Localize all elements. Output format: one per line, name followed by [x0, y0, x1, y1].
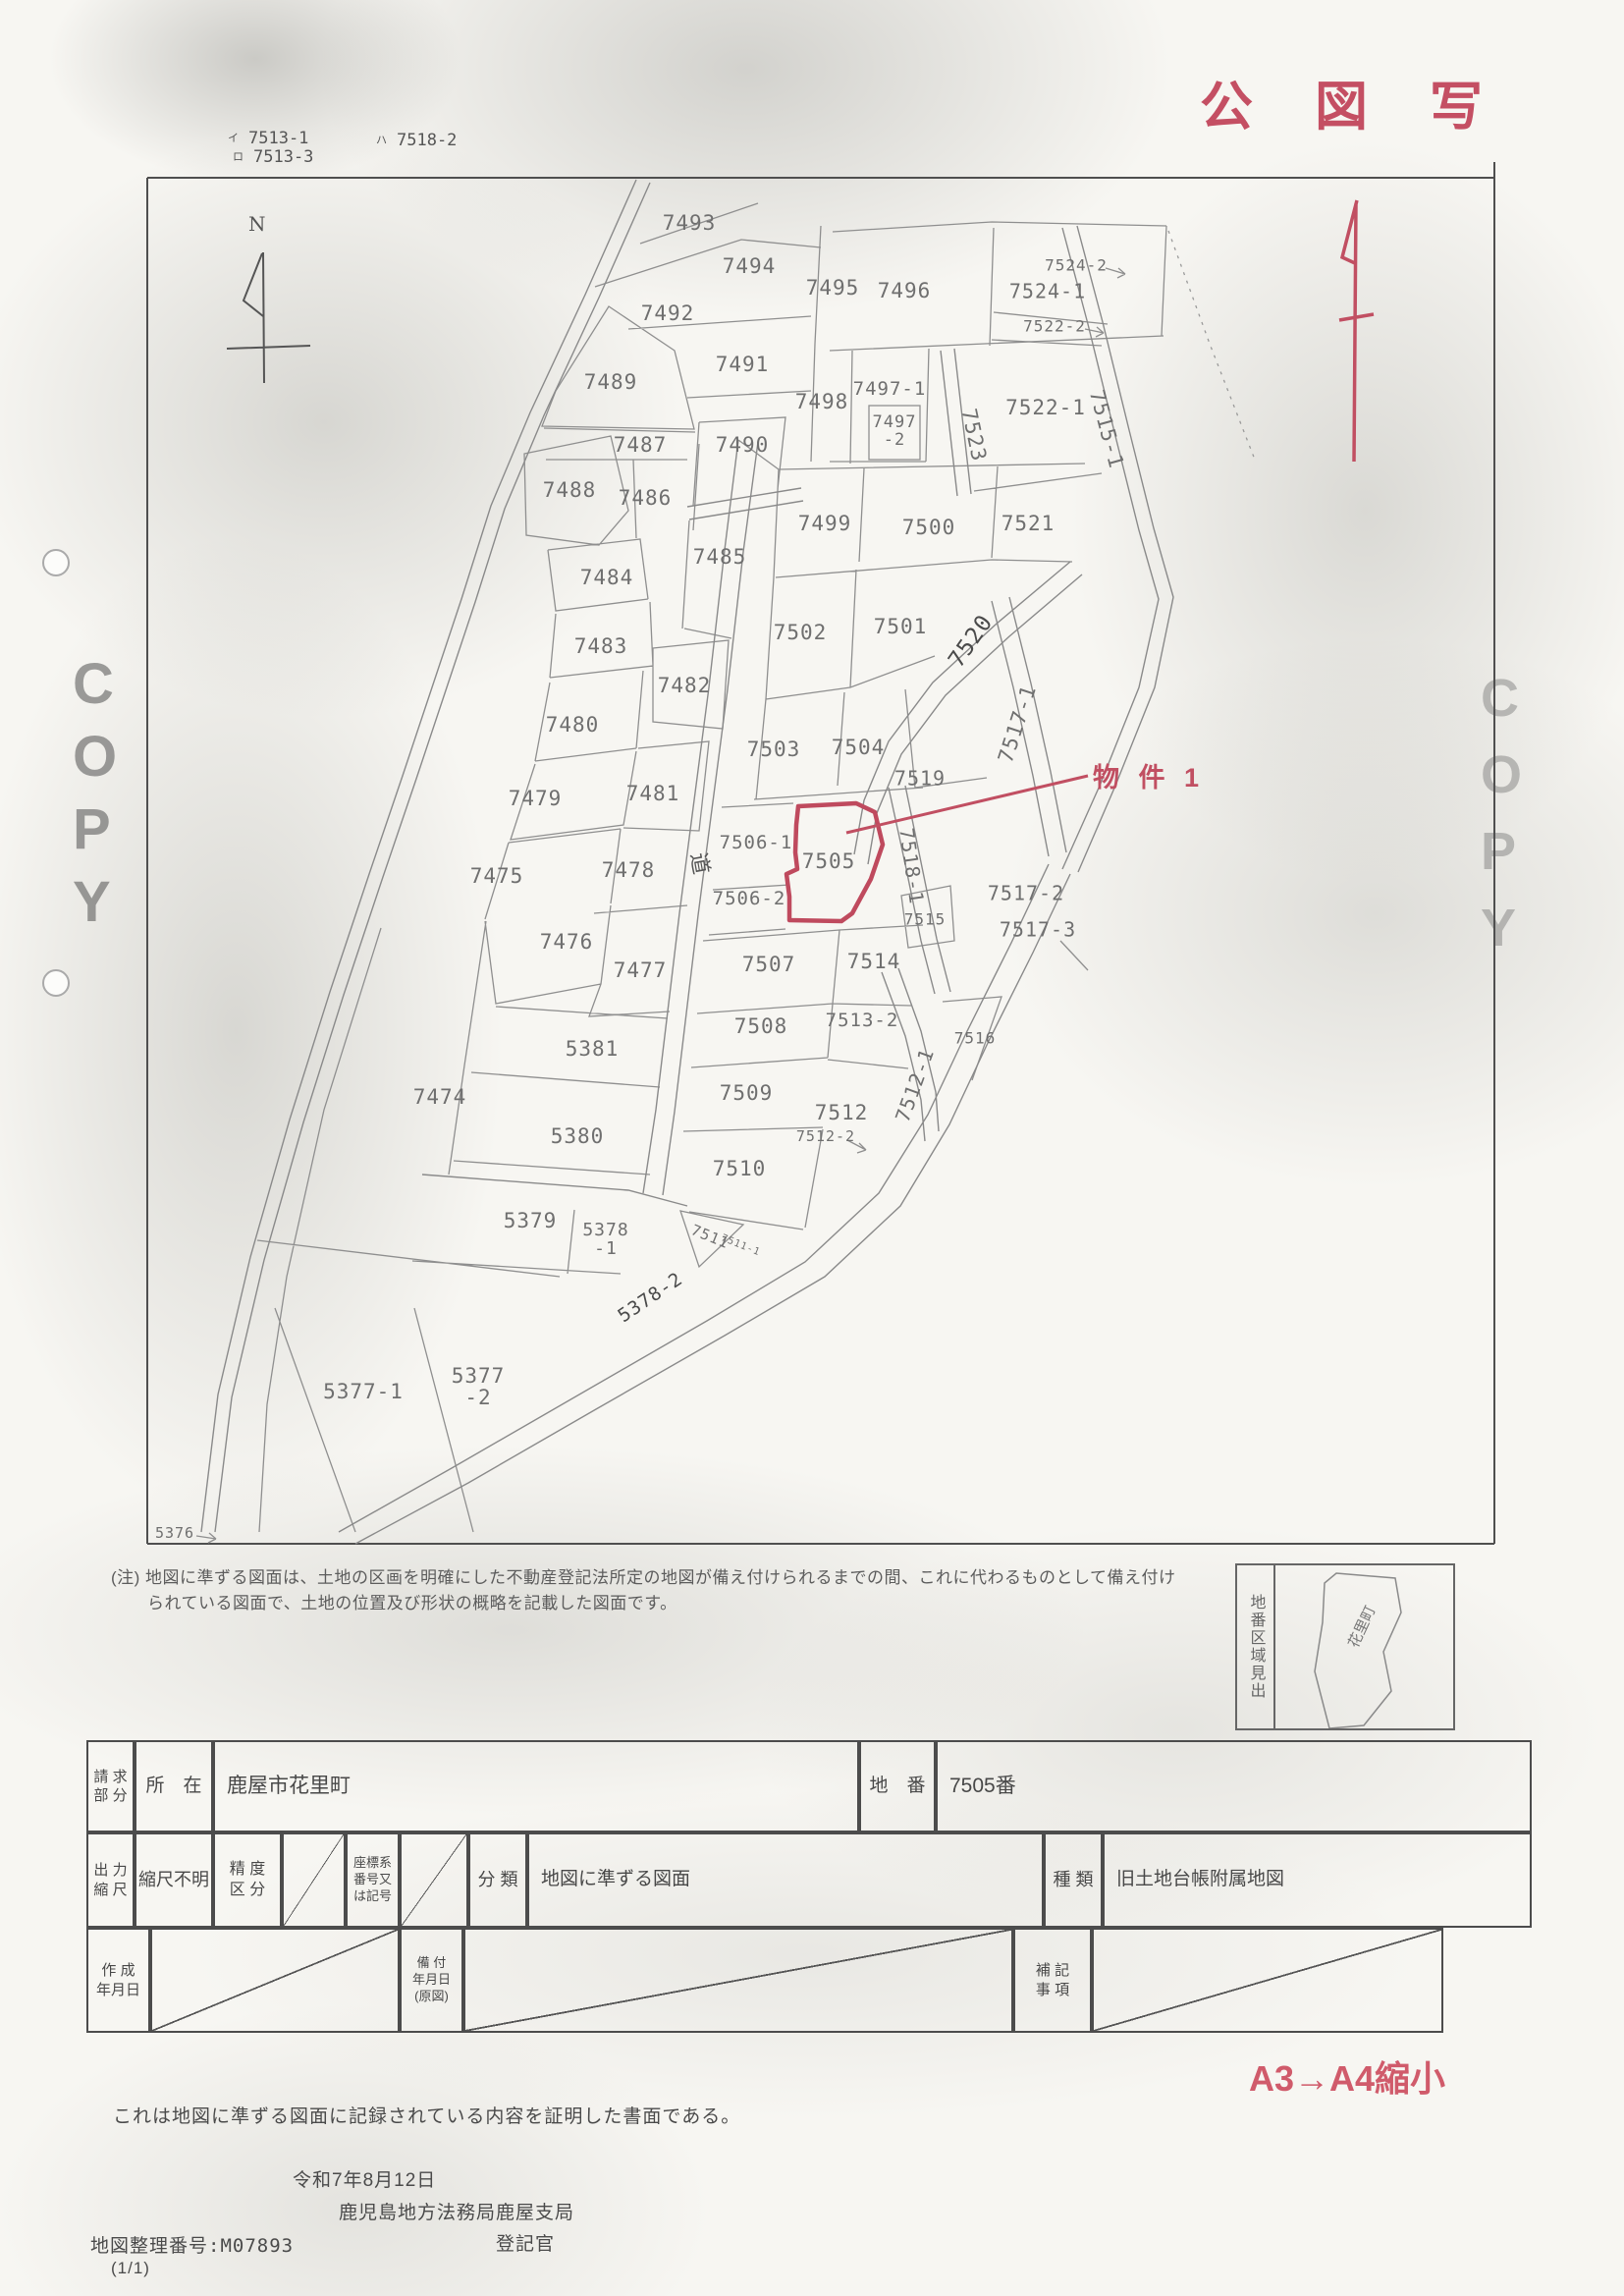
parcel-label-7522-1: 7522-1 [1005, 397, 1086, 418]
parcel-label-7492: 7492 [641, 302, 695, 324]
parcel-label-7483: 7483 [574, 635, 628, 657]
parcel-label-7475: 7475 [470, 865, 524, 887]
created-date-label: 作 成 年月日 [86, 1928, 150, 2033]
parcel-label-7498: 7498 [795, 391, 849, 412]
parcel-label-7506-1: 7506-1 [720, 834, 793, 853]
coord-blank-cell [400, 1832, 468, 1928]
parcel-label-道: 道 [686, 851, 713, 878]
parcel-label-7476: 7476 [540, 931, 594, 953]
district-index-box: 地番区域見出 花里町 [1235, 1563, 1455, 1730]
parcel-label-7493: 7493 [663, 212, 717, 234]
parcel-label-5379: 5379 [504, 1210, 558, 1231]
parcel-label-7503: 7503 [747, 738, 801, 760]
parcel-label-7491: 7491 [716, 354, 770, 375]
parcel-label-7481: 7481 [626, 783, 680, 804]
page-count: (1/1) [111, 2259, 150, 2278]
parcel-label-7474: 7474 [413, 1086, 467, 1108]
parcel-label-7494: 7494 [723, 255, 777, 277]
parcel-label-7515: 7515 [904, 912, 947, 929]
punch-hole-icon [43, 550, 69, 575]
red-arrow-icon [1339, 200, 1374, 462]
parcel-label-5380: 5380 [551, 1125, 605, 1147]
parcel-label-7490: 7490 [716, 434, 770, 456]
map-number: 地図整理番号:M07893 [90, 2231, 294, 2258]
parcel-label-5377-2: 5377 -2 [452, 1365, 506, 1408]
parcel-label-7480: 7480 [546, 714, 600, 736]
north-arrow-icon [227, 252, 310, 383]
filed-date-blank-cell [463, 1928, 1013, 2033]
parcel-label-7504: 7504 [832, 737, 886, 758]
request-part-label: 請 求 部 分 [86, 1740, 135, 1832]
parcel-label-7513-2: 7513-2 [826, 1011, 899, 1031]
parcel-label-7514: 7514 [847, 951, 901, 972]
kind-label: 種 類 [1044, 1832, 1103, 1928]
parcel-label-7505: 7505 [802, 850, 856, 872]
a3-a4-reduction-note: A3→A4縮小 [1249, 2050, 1445, 2102]
coord-system-label: 座標系 番号又 は記号 [346, 1832, 400, 1928]
parcel-label-5377-1: 5377-1 [323, 1381, 404, 1402]
precision-class-label: 精 度 区 分 [213, 1832, 282, 1928]
kind-value: 旧土地台帳附属地図 [1103, 1832, 1532, 1928]
filed-date-label: 備 付 年月日 (原図) [400, 1928, 463, 2033]
parcel-label-7484: 7484 [580, 567, 634, 588]
parcel-label-7507: 7507 [742, 954, 796, 975]
district-outline-map: 花里町 [1275, 1565, 1455, 1728]
parcel-label-7509: 7509 [720, 1082, 774, 1104]
parcel-label-7500: 7500 [902, 517, 956, 538]
lot-number-label: 地 番 [859, 1740, 936, 1832]
parcel-label-7502: 7502 [774, 622, 828, 643]
parcel-label-7516: 7516 [954, 1031, 997, 1048]
north-label: N [248, 212, 266, 236]
punch-hole-icon [43, 970, 69, 996]
parcel-label-7479: 7479 [509, 788, 563, 809]
parcel-label-7489: 7489 [584, 371, 638, 393]
remarks-label: 補 記 事 項 [1013, 1928, 1092, 2033]
parcel-label-7517-2: 7517-2 [988, 884, 1064, 904]
remarks-blank-cell [1092, 1928, 1443, 2033]
registrar-label: 登記官 [496, 2229, 555, 2256]
precision-blank-cell [282, 1832, 346, 1928]
created-date-blank-cell [150, 1928, 400, 2033]
note-line-1: (注) 地図に準ずる図面は、土地の区画を明確にした不動産登記法所定の地図が備え付… [111, 1563, 1176, 1588]
parcel-label-7508: 7508 [734, 1015, 788, 1037]
parcel-label-7486: 7486 [619, 487, 673, 509]
output-scale-value: 縮尺不明 [135, 1832, 213, 1928]
highlight-leader-line [846, 776, 1088, 833]
parcel-label-7524-2: 7524-2 [1045, 258, 1108, 275]
parcel-label-7477: 7477 [614, 959, 668, 981]
parcel-label-7521: 7521 [1001, 513, 1056, 534]
parcel-label-7501: 7501 [874, 616, 928, 637]
location-value: 鹿屋市花里町 [213, 1740, 859, 1832]
parcel-label-7487: 7487 [614, 434, 668, 456]
parcel-label-7524-1: 7524-1 [1009, 282, 1086, 302]
legal-affairs-office: 鹿児島地方法務局鹿屋支局 [339, 2198, 574, 2224]
district-index-title: 地番区域見出 [1237, 1565, 1275, 1728]
lot-number-value: 7505番 [936, 1740, 1532, 1832]
certification-statement: これは地図に準ずる図面に記録されている内容を証明した書面である。 [113, 2102, 740, 2128]
parcel-label-7485: 7485 [693, 546, 747, 568]
property-1-label: 物 件 1 [1093, 756, 1205, 794]
issue-date: 令和7年8月12日 [293, 2165, 436, 2192]
parcel-label-7517-3: 7517-3 [1000, 920, 1076, 941]
classification-label: 分 類 [468, 1832, 527, 1928]
parcel-label-7510: 7510 [713, 1158, 767, 1179]
parcel-label-5376: 5376 [155, 1526, 194, 1542]
parcel-label-7506-2: 7506-2 [713, 890, 786, 909]
parcel-label-7519: 7519 [894, 769, 946, 790]
dashed-boundary [1168, 231, 1255, 460]
note-line-2: られている図面で、土地の位置及び形状の概略を記載した図面です。 [147, 1589, 677, 1613]
parcel-label-7478: 7478 [602, 859, 656, 881]
parcel-label-7495: 7495 [806, 277, 860, 299]
parcel-label-7497-1: 7497-1 [853, 380, 927, 400]
district-name-label: 花里町 [1345, 1604, 1379, 1651]
parcel-label-7512-2: 7512-2 [796, 1129, 855, 1145]
parcel-label-5381: 5381 [566, 1038, 620, 1060]
scanned-cadastral-certificate: COPY COPY 公 図 写 イ7513-1 ロ7513-3 ハ7518-2 … [0, 0, 1624, 2296]
output-scale-label: 出 力 縮 尺 [86, 1832, 135, 1928]
location-label: 所 在 [135, 1740, 213, 1832]
parcel-label-5378-1: 5378 -1 [582, 1222, 628, 1259]
parcel-label-7482: 7482 [658, 675, 712, 696]
parcel-label-7497-2: 7497 -2 [873, 414, 917, 450]
classification-value: 地図に準ずる図面 [527, 1832, 1044, 1928]
parcel-label-7499: 7499 [798, 513, 852, 534]
parcel-label-7496: 7496 [878, 280, 932, 301]
parcel-label-7512: 7512 [815, 1102, 869, 1123]
parcel-label-7488: 7488 [543, 479, 597, 501]
parcel-label-7522-2: 7522-2 [1023, 319, 1086, 336]
